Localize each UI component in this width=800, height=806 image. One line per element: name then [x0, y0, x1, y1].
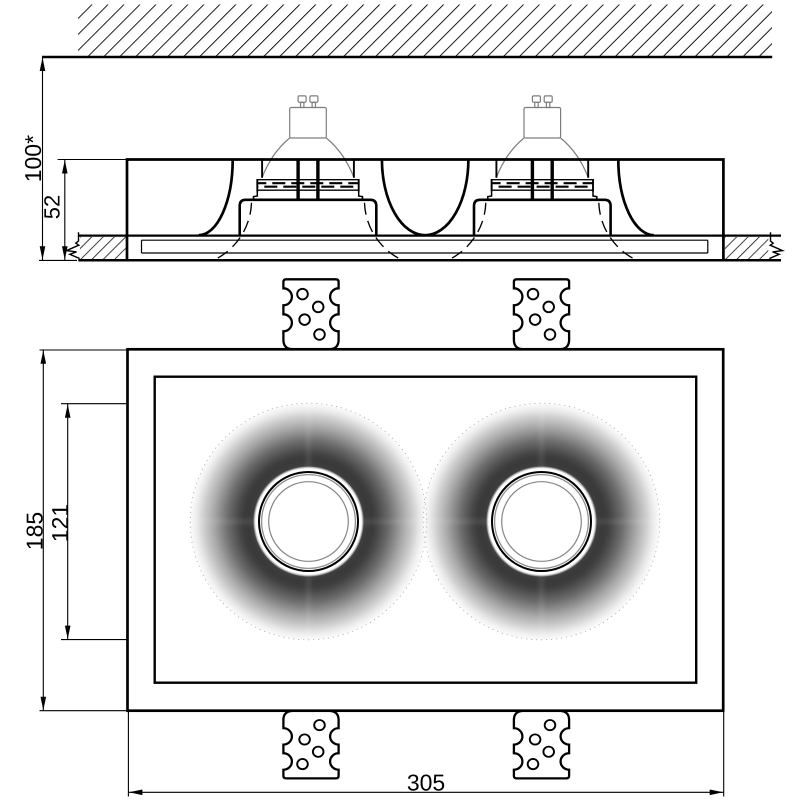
svg-text:121: 121: [47, 504, 73, 542]
svg-text:100*: 100*: [20, 135, 46, 182]
svg-text:52: 52: [40, 195, 65, 219]
svg-text:185: 185: [22, 512, 48, 550]
svg-text:305: 305: [407, 769, 445, 795]
